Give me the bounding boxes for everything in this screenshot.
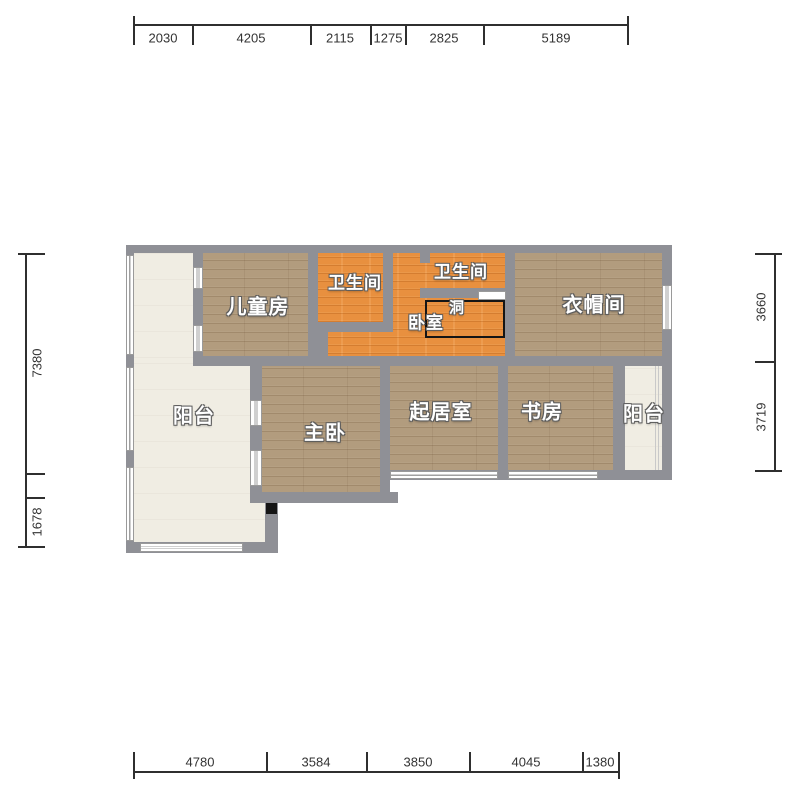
room-label-bathroom-2: 卫生间 <box>434 258 488 283</box>
room-label-balcony-right: 阳台 <box>623 398 665 427</box>
dim-bottom-2: 3850 <box>404 755 433 770</box>
window-children-a <box>193 267 203 289</box>
dim-bottom-3: 4045 <box>512 755 541 770</box>
dim-bottom-1: 3584 <box>302 755 331 770</box>
wall-master-right <box>380 356 390 503</box>
dim-right-0: 3660 <box>754 293 769 322</box>
room-label-balcony-left: 阳台 <box>173 400 215 429</box>
column-marker <box>266 503 277 514</box>
window-balcony-bottom <box>140 543 243 552</box>
dim-bottom-4: 1380 <box>586 755 615 770</box>
window-left-a <box>126 255 134 355</box>
wall-cloakroom-left <box>505 253 515 356</box>
wall-bathroom1-bottom <box>308 322 393 332</box>
room-label-hole: 洞 <box>449 297 465 318</box>
window-children-b <box>193 325 203 352</box>
room-label-bedroom: 卧室 <box>408 309 444 334</box>
balcony-left-floor-upper <box>133 253 195 358</box>
window-left-b <box>126 367 134 451</box>
room-label-children: 儿童房 <box>227 291 290 320</box>
room-label-study: 书房 <box>521 396 563 425</box>
wall-bathroom1-right <box>383 253 393 332</box>
dim-top-1: 4205 <box>237 31 266 46</box>
window-study-bottom <box>508 471 598 479</box>
window-master-balcony-b <box>250 450 262 486</box>
wall-middle-horizontal <box>193 356 672 366</box>
room-label-bathroom-1: 卫生间 <box>328 269 382 294</box>
window-cloakroom-right <box>662 285 672 330</box>
window-master-balcony-a <box>250 400 262 426</box>
window-left-c <box>126 467 134 541</box>
wall-corridor-chunk <box>308 332 328 358</box>
dim-top-0: 2030 <box>149 31 178 46</box>
wall-bathroom2-stub <box>420 250 430 263</box>
dim-top-2: 2115 <box>326 31 354 46</box>
shelf-above-hole <box>478 291 506 300</box>
dim-bottom-0: 4780 <box>186 755 215 770</box>
floor-plan: 儿童房 卫生间 卫生间 卧室 洞 衣帽间 阳台 主卧 起居室 书房 阳台 203… <box>0 0 800 800</box>
dim-top-4: 2825 <box>430 31 459 46</box>
dim-top-3: 1275 <box>374 31 403 46</box>
dim-top-5: 5189 <box>542 31 571 46</box>
dim-left-1: 1678 <box>30 508 45 537</box>
window-living-bottom <box>390 471 498 479</box>
wall-children-right <box>308 253 318 332</box>
wall-living-study <box>498 366 508 480</box>
dim-right-1: 3719 <box>754 403 769 432</box>
wall-top <box>126 245 672 253</box>
dim-left-0: 7380 <box>30 349 45 378</box>
room-label-living-room: 起居室 <box>410 396 473 425</box>
balcony-left-floor-lower <box>133 358 266 546</box>
room-label-cloakroom: 衣帽间 <box>563 289 626 318</box>
room-label-master-bedroom: 主卧 <box>304 417 346 446</box>
